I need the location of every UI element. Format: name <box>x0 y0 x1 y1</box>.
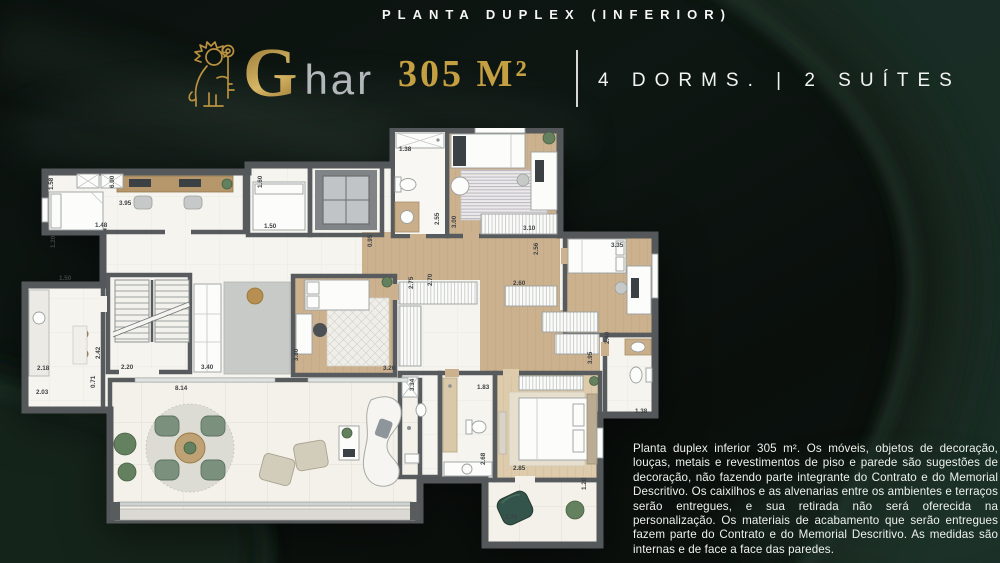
measurement-label: 3.34 <box>409 378 416 391</box>
headboard-icon <box>587 394 597 464</box>
toilet-icon <box>416 404 426 417</box>
measurement-label: 2.40 <box>604 331 611 344</box>
measurement-label: 2.20 <box>121 364 134 371</box>
dining-chair-icon <box>155 460 179 480</box>
measurement-label: 2.18 <box>37 365 50 372</box>
measurement-label: 0.71 <box>90 375 97 388</box>
marketing-page: PLANTA DUPLEX (INFERIOR) G har 305 M² 4 … <box>0 0 1000 563</box>
measurement-label: 3.80 <box>293 348 300 361</box>
office-chair-icon <box>134 196 152 209</box>
pillow-icon <box>573 430 584 452</box>
sofa-icon <box>194 284 221 372</box>
wardrobe-icon <box>505 286 557 306</box>
measurement-label: 2.03 <box>36 389 49 396</box>
measurement-label: 2.56 <box>533 242 540 255</box>
measurement-label: 3.95 <box>587 351 594 364</box>
lion-key-logo-icon <box>181 40 243 112</box>
side-table-icon <box>451 177 469 195</box>
plant-icon <box>543 132 555 144</box>
measurement-label: 2.85 <box>513 465 526 472</box>
wardrobe-icon <box>542 312 598 332</box>
pillow-icon <box>453 136 466 166</box>
measurement-label: 1.50 <box>59 275 72 282</box>
dining-chair-icon <box>201 416 225 436</box>
measurement-label: 2.70 <box>427 273 434 286</box>
lounge-chair-icon <box>293 439 329 471</box>
header-divider <box>576 50 578 107</box>
plant-icon <box>382 277 392 287</box>
tv-cabinet-icon <box>499 412 506 454</box>
unit-area: 305 M² <box>398 52 530 96</box>
measurement-label: 1.38 <box>399 146 412 153</box>
measurement-label: 2.42 <box>95 346 102 359</box>
measurement-label: 3.40 <box>201 364 214 371</box>
glass-railing-icon <box>118 502 412 506</box>
measurement-label: 2.75 <box>408 276 415 289</box>
measurement-label: 8.14 <box>175 385 188 392</box>
chair-icon <box>313 323 327 337</box>
table-icon <box>73 326 87 364</box>
sink-icon <box>462 464 472 474</box>
plant-icon <box>566 501 584 519</box>
measurement-label: 2.68 <box>480 452 487 465</box>
toilet-icon <box>466 420 472 434</box>
measurement-label: 2.55 <box>434 212 441 225</box>
measurement-label: 1.20 <box>50 235 57 248</box>
measurement-label: 1.58 <box>48 177 55 190</box>
measurement-label: 2.60 <box>513 280 526 287</box>
measurement-label: 0.95 <box>367 234 374 247</box>
unit-specs: 4 DORMS. | 2 SUÍTES <box>598 70 950 92</box>
counter-icon <box>29 290 49 376</box>
toilet-icon <box>630 367 642 383</box>
measurement-label: 3.10 <box>523 225 536 232</box>
wall-cap <box>410 502 420 520</box>
plant-icon <box>342 428 352 438</box>
measurement-label: 3.35 <box>611 242 624 249</box>
glass-door-icon <box>135 378 275 382</box>
shower-icon <box>443 378 457 452</box>
plant-icon <box>184 442 196 454</box>
dining-chair-icon <box>155 416 179 436</box>
wardrobe-icon <box>399 306 421 366</box>
sink-icon <box>405 454 419 463</box>
measurement-label: 1.83 <box>477 384 490 391</box>
measurement-label: 1.48 <box>95 222 108 229</box>
stairs-icon <box>113 280 189 342</box>
plant-icon <box>118 463 136 481</box>
measurement-label: 1.50 <box>264 223 277 230</box>
room-living <box>194 282 290 374</box>
sink-icon <box>631 342 645 352</box>
measurement-label: 3.95 <box>119 200 132 207</box>
wardrobe-icon <box>519 376 583 390</box>
monitor-icon <box>535 160 544 182</box>
plant-icon <box>222 179 232 189</box>
elevator-icon <box>315 170 377 230</box>
pillow-icon <box>573 404 584 426</box>
measurement-label: 1.20 <box>581 477 588 490</box>
sink-icon <box>33 312 45 324</box>
monitor-icon <box>179 179 201 187</box>
measurement-label: 1.38 <box>635 408 648 415</box>
shower-icon <box>407 426 411 430</box>
measurement-label: 6.00 <box>109 175 116 188</box>
planter-icon <box>115 509 415 520</box>
page-title: PLANTA DUPLEX (INFERIOR) <box>307 7 807 22</box>
measurement-label: 3.00 <box>451 215 458 228</box>
measurement-label: 1.60 <box>257 175 264 188</box>
wardrobe-icon <box>481 214 557 234</box>
room-closet-hall <box>253 182 305 230</box>
pillow-icon <box>616 257 624 271</box>
disclaimer-text: Planta duplex inferior 305 m². Os móveis… <box>633 442 998 557</box>
chair-icon <box>517 174 529 186</box>
svg-text:G har: G har <box>243 35 374 112</box>
glass-door-icon <box>308 378 408 382</box>
desk-icon <box>296 314 312 354</box>
logo-initial: G <box>243 35 297 112</box>
dining-chair-icon <box>201 460 225 480</box>
monitor-icon <box>129 179 151 187</box>
measurement-label: 3.20 <box>383 365 396 372</box>
plant-icon <box>114 433 136 455</box>
wardrobe-icon <box>555 334 599 354</box>
coffee-table-icon <box>247 288 263 304</box>
office-chair-icon <box>184 196 202 209</box>
monitor-icon <box>631 278 639 298</box>
chair-icon <box>615 282 627 294</box>
tray-icon <box>343 449 355 457</box>
plant-icon <box>590 377 599 386</box>
wall-cap <box>110 502 120 520</box>
measurement-label: 2.79 <box>505 514 518 521</box>
sink-icon <box>401 211 414 224</box>
logo-rest: har <box>304 56 374 103</box>
floor-plan: 1.586.003.951.481.201.501.601.501.382.55… <box>15 128 660 558</box>
